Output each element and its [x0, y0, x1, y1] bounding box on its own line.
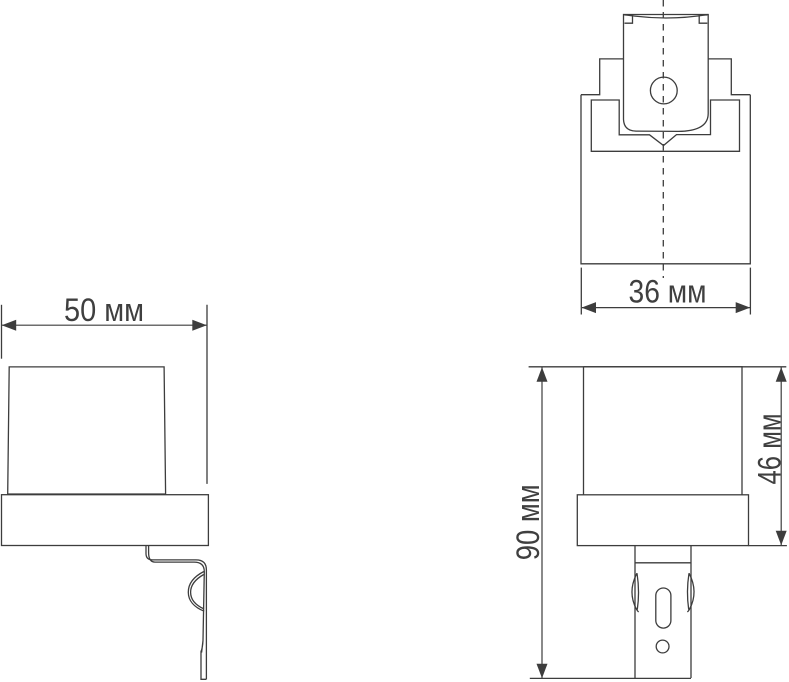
- svg-text:46 мм: 46 мм: [752, 414, 788, 485]
- svg-text:36 мм: 36 мм: [629, 274, 707, 310]
- svg-text:90 мм: 90 мм: [510, 484, 546, 560]
- svg-text:50 мм: 50 мм: [64, 292, 144, 328]
